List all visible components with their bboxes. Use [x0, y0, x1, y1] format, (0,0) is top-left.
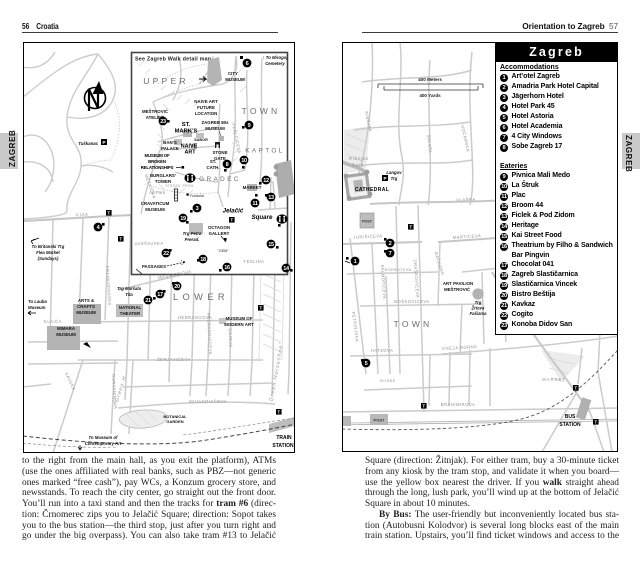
svg-text:T: T — [107, 211, 110, 216]
svg-text:Trg: Trg — [475, 300, 482, 305]
svg-text:Trg: Trg — [391, 176, 398, 181]
svg-text:15: 15 — [268, 242, 274, 248]
svg-text:Prerad.: Prerad. — [185, 237, 200, 242]
svg-text:400 Meters: 400 Meters — [418, 77, 442, 82]
svg-text:(Sundays): (Sundays) — [38, 256, 59, 261]
svg-text:RELATIONSHIPS: RELATIONSHIPS — [141, 165, 174, 170]
svg-text:PASSAGES: PASSAGES — [142, 264, 166, 269]
svg-text:VARŠAVSKA: VARŠAVSKA — [134, 241, 163, 247]
svg-text:TESLINA: TESLINA — [244, 259, 265, 264]
svg-text:Trg Maršala: Trg Maršala — [117, 286, 142, 291]
svg-text:400 Yards: 400 Yards — [419, 93, 441, 98]
svg-text:BRANIMIROVA: BRANIMIROVA — [441, 402, 476, 407]
svg-text:KLAIĆA: KLAIĆA — [44, 319, 62, 324]
svg-text:Tuškanac: Tuškanac — [78, 141, 98, 146]
svg-text:2: 2 — [389, 241, 392, 247]
svg-text:3: 3 — [196, 206, 199, 212]
svg-text:Square: Square — [252, 214, 274, 221]
svg-text:Fašizma: Fašizma — [470, 311, 488, 316]
svg-text:HEBRANGOVA: HEBRANGOVA — [178, 315, 212, 320]
svg-text:CATH.: CATH. — [206, 165, 219, 170]
svg-text:TOWN: TOWN — [394, 319, 433, 329]
svg-text:T: T — [259, 306, 262, 311]
svg-text:POST: POST — [362, 220, 373, 224]
svg-text:Funicular: Funicular — [190, 194, 205, 198]
svg-text:MUSEUM: MUSEUM — [145, 207, 165, 212]
svg-text:9: 9 — [248, 123, 251, 129]
svg-text:23: 23 — [160, 119, 166, 125]
svg-text:BOŠKOVIĆEVA: BOŠKOVIĆEVA — [394, 299, 429, 304]
svg-text:BROKEN: BROKEN — [148, 159, 166, 164]
svg-text:See Zagreb Walk detail map: See Zagreb Walk detail map — [135, 57, 212, 63]
svg-text:11: 11 — [252, 201, 258, 207]
svg-text:T: T — [230, 218, 233, 223]
svg-text:GRADEC: GRADEC — [199, 176, 241, 183]
svg-text:STATION: STATION — [559, 422, 581, 428]
svg-text:TOWN: TOWN — [242, 106, 281, 116]
svg-text:MARKET: MARKET — [243, 185, 262, 190]
svg-text:T: T — [409, 225, 412, 230]
svg-text:Art Park: Art Park — [149, 190, 166, 195]
svg-text:Cemetery: Cemetery — [265, 61, 285, 66]
svg-text:NAIVE ART: NAIVE ART — [194, 99, 218, 104]
svg-text:ZAGREB 80s: ZAGREB 80s — [201, 120, 229, 125]
svg-text:ST.: ST. — [182, 122, 191, 128]
svg-text:MODERN ART: MODERN ART — [224, 322, 254, 327]
svg-text:FUTURE: FUTURE — [197, 105, 215, 110]
svg-text:BAN’S: BAN’S — [163, 140, 177, 145]
svg-text:NATIONAL: NATIONAL — [119, 305, 142, 310]
svg-text:To Britanski Trg: To Britanski Trg — [32, 244, 65, 249]
svg-text:STATION: STATION — [272, 443, 294, 449]
svg-text:POST: POST — [374, 418, 385, 423]
svg-text:MUSEUM OF: MUSEUM OF — [226, 316, 253, 321]
svg-text:PALACE: PALACE — [161, 146, 179, 151]
svg-text:STONE: STONE — [212, 150, 227, 155]
svg-text:To Lauba: To Lauba — [28, 299, 48, 304]
svg-text:ĐORĐIĆEVA: ĐORĐIĆEVA — [385, 267, 412, 272]
svg-text:HATZOVA: HATZOVA — [371, 348, 394, 353]
svg-text:5: 5 — [365, 361, 368, 367]
svg-text:UPPER: UPPER — [143, 76, 189, 86]
svg-text:MUSEUM: MUSEUM — [76, 310, 96, 315]
svg-text:Park: Park — [352, 163, 364, 168]
svg-text:CATHEDRAL: CATHEDRAL — [355, 187, 389, 193]
svg-text:ART: ART — [184, 150, 196, 156]
svg-text:LOWER: LOWER — [173, 292, 229, 302]
svg-text:6: 6 — [246, 61, 249, 67]
svg-text:GARDEN: GARDEN — [166, 419, 183, 424]
svg-text:MUSEUM OF: MUSEUM OF — [145, 153, 170, 158]
svg-text:22: 22 — [163, 251, 169, 257]
svg-text:BUS: BUS — [565, 414, 576, 420]
svg-text:Langov: Langov — [386, 170, 402, 175]
svg-text:ĐORĐE: ĐORĐE — [380, 379, 396, 383]
svg-text:MARKET: MARKET — [542, 377, 565, 382]
svg-text:P: P — [383, 176, 386, 181]
svg-text:Tita: Tita — [125, 292, 133, 297]
svg-text:SABOR: SABOR — [194, 138, 208, 142]
svg-text:MEŠTROVIĆ: MEŠTROVIĆ — [142, 109, 169, 114]
svg-text:13: 13 — [268, 195, 274, 201]
svg-text:Contemporary Art: Contemporary Art — [85, 441, 122, 446]
svg-text:TRAIN: TRAIN — [276, 435, 292, 441]
svg-text:7: 7 — [389, 251, 392, 257]
svg-text:STROSS. PROM.: STROSS. PROM. — [165, 184, 194, 188]
svg-text:ARTS &: ARTS & — [78, 298, 95, 303]
svg-text:ŽERJAVIĆEVA: ŽERJAVIĆEVA — [157, 357, 191, 362]
svg-text:GALLERY: GALLERY — [209, 231, 230, 236]
svg-text:“GEM”: “GEM” — [218, 249, 229, 253]
svg-text:BURGLARS’: BURGLARS’ — [150, 173, 176, 178]
svg-text:Jelačić: Jelačić — [223, 208, 244, 215]
svg-text:↑ To Mirogoj: ↑ To Mirogoj — [262, 55, 288, 60]
svg-text:ART PAVILION: ART PAVILION — [443, 281, 473, 286]
svg-text:CITY: CITY — [228, 71, 238, 76]
svg-text:Trg Petra: Trg Petra — [183, 231, 202, 236]
svg-text:KAPTOL: KAPTOL — [245, 148, 285, 155]
svg-text:ST.: ST. — [210, 159, 216, 164]
svg-text:17: 17 — [157, 292, 163, 298]
svg-text:GAJEVA: GAJEVA — [227, 328, 233, 347]
svg-text:MUSEUM: MUSEUM — [56, 332, 76, 337]
svg-text:Ribnjak: Ribnjak — [349, 156, 369, 161]
svg-text:8: 8 — [226, 162, 229, 168]
svg-text:T: T — [119, 237, 122, 242]
svg-text:Flea Market: Flea Market — [36, 250, 60, 255]
svg-text:CRAFTS: CRAFTS — [77, 304, 95, 309]
svg-text:19: 19 — [180, 216, 186, 222]
svg-text:18: 18 — [200, 257, 206, 263]
svg-text:MIMARA: MIMARA — [57, 326, 76, 331]
svg-text:MIHANOVIČEVA: MIHANOVIČEVA — [189, 399, 227, 404]
svg-text:P: P — [102, 140, 105, 145]
svg-text:T: T — [422, 404, 425, 409]
svg-text:MUSEUM: MUSEUM — [205, 126, 225, 131]
svg-text:Museum: Museum — [28, 305, 46, 310]
svg-text:Žrtava: Žrtava — [471, 306, 486, 311]
svg-text:1: 1 — [354, 259, 357, 265]
svg-text:OCTAGON: OCTAGON — [208, 225, 230, 230]
svg-text:VLAŠKA: VLAŠKA — [456, 197, 475, 203]
svg-text:To Museum of: To Museum of — [89, 435, 119, 440]
svg-text:16: 16 — [224, 265, 230, 271]
svg-text:21: 21 — [145, 298, 151, 304]
svg-text:T: T — [277, 410, 280, 415]
svg-text:T: T — [594, 420, 597, 425]
svg-text:LOCATION: LOCATION — [195, 111, 218, 116]
svg-text:ILICA: ILICA — [75, 212, 88, 217]
svg-text:20: 20 — [174, 284, 180, 290]
svg-text:T: T — [574, 386, 577, 391]
svg-text:THEATER: THEATER — [120, 311, 141, 316]
svg-text:CRAVATICUM: CRAVATICUM — [141, 201, 170, 206]
svg-text:12: 12 — [263, 178, 269, 184]
svg-text:MARK’S: MARK’S — [175, 129, 198, 135]
svg-text:10: 10 — [241, 158, 247, 164]
svg-text:MUSEUM: MUSEUM — [225, 77, 245, 82]
svg-text:MEŠTROVIĆ: MEŠTROVIĆ — [444, 287, 471, 292]
